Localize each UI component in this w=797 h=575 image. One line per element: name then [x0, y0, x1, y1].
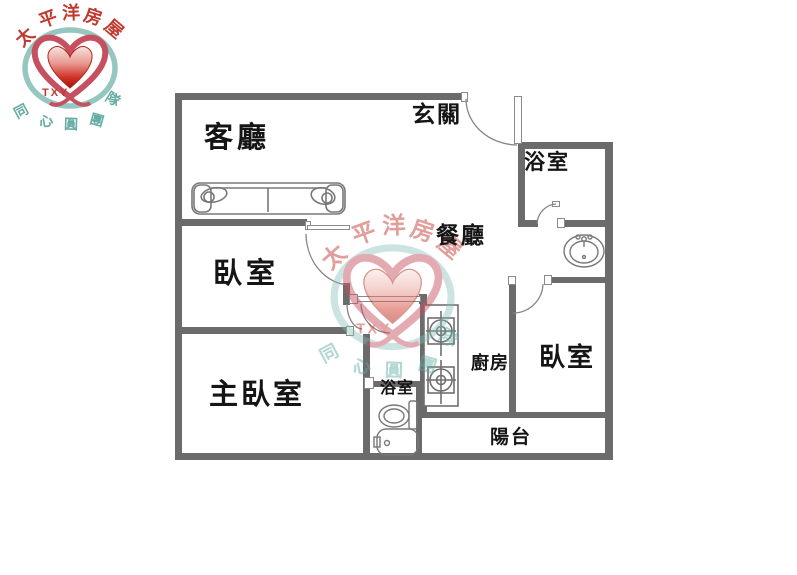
- bathtop-door-cap: [552, 201, 560, 207]
- brand-code: TXY: [356, 323, 392, 337]
- toilet-icon: [379, 401, 417, 429]
- room-label-bedroom-left: 臥室: [213, 260, 279, 289]
- wall-bottom: [175, 453, 613, 460]
- sink-alcove-jamb: [544, 275, 552, 285]
- wall-living-bottom: [175, 219, 307, 226]
- entry-door-panel: [514, 96, 522, 144]
- wall-bathtop-bottom-a: [518, 220, 538, 227]
- bathtop-door-arc: [537, 204, 556, 224]
- room-label-kitchen: 廚房: [471, 354, 509, 372]
- brand-char: 洋: [62, 4, 81, 23]
- entry-door-jamb: [461, 92, 468, 102]
- wall-top: [175, 93, 463, 100]
- bathtub-icon: [374, 429, 418, 455]
- room-label-bath-top: 浴室: [524, 152, 570, 173]
- bedroomright-door-jamb: [508, 276, 516, 285]
- entry-door-arc: [466, 99, 517, 145]
- wall-balcony-top: [422, 412, 613, 418]
- room-label-balcony: 陽台: [490, 428, 532, 447]
- room-label-dining: 餐廳: [436, 224, 486, 247]
- brand-char: 洋: [382, 214, 406, 238]
- sofa-icon: [192, 183, 345, 214]
- brand-code: TXY: [42, 88, 69, 99]
- room-label-bedroom-right: 臥室: [539, 344, 595, 370]
- room-label-entry: 玄關: [412, 103, 462, 126]
- wall-bathtop-top: [518, 142, 612, 149]
- wall-sink-alcove: [551, 277, 605, 283]
- floorplan-canvas: 客廳 玄關 浴室 餐廳 臥室 主臥室 廚房 臥室 浴室 陽台 太 平 洋 房 屋…: [0, 0, 797, 575]
- wall-left: [175, 93, 182, 460]
- motto-char: 圓: [384, 361, 403, 380]
- motto-char: 圓: [64, 117, 78, 131]
- wall-bedroomright-left: [509, 283, 516, 413]
- room-label-bath-bottom: 浴室: [380, 381, 414, 397]
- room-label-living: 客廳: [204, 124, 270, 153]
- motto-char: 心: [38, 113, 54, 129]
- motto-char: 心: [351, 356, 372, 377]
- bathtop-door-jamb: [557, 218, 565, 228]
- room-label-master: 主臥室: [209, 381, 305, 410]
- sink-icon: [564, 235, 604, 267]
- bedroomright-door-arc: [513, 284, 543, 313]
- brand-logo: 太 平 洋 房 屋 TXY 同 心 圓 團 隊: [8, 4, 128, 132]
- wall-bathtop-bottom-b: [564, 220, 605, 227]
